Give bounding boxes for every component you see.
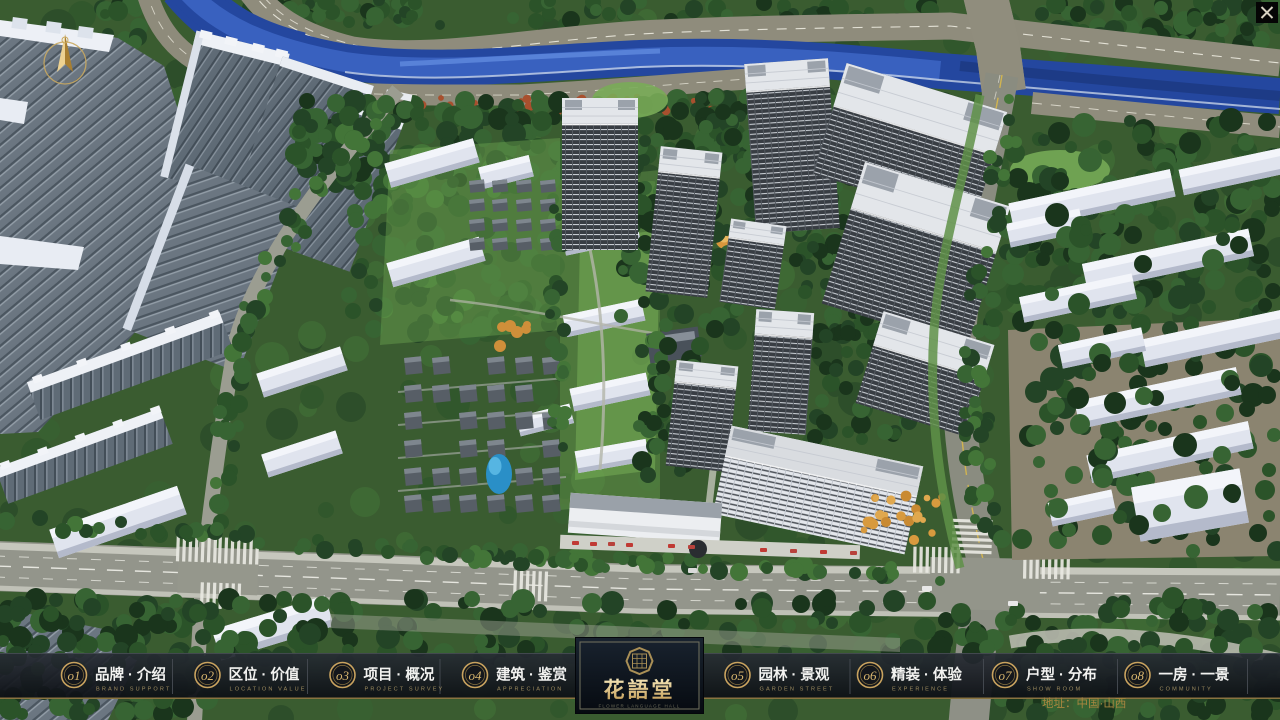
svg-text:精装 · 体验: 精装 · 体验 [891, 666, 962, 684]
svg-text:o7: o7 [999, 668, 1013, 683]
svg-text:COMMUNITY: COMMUNITY [1160, 687, 1213, 693]
svg-text:建筑 · 鉴赏: 建筑 · 鉴赏 [496, 666, 567, 684]
svg-text:EXPERIENCE: EXPERIENCE [892, 687, 949, 693]
svg-text:o8: o8 [1131, 668, 1145, 683]
svg-text:区位 · 价值: 区位 · 价值 [229, 666, 300, 684]
svg-text:o1: o1 [68, 668, 81, 683]
svg-text:项目 · 概况: 项目 · 概况 [364, 666, 435, 684]
svg-text:地址：中国·山西: 地址：中国·山西 [1042, 696, 1126, 710]
svg-text:o3: o3 [336, 668, 350, 683]
svg-text:o2: o2 [201, 668, 215, 683]
svg-text:o5: o5 [731, 668, 745, 683]
svg-text:品牌 · 介绍: 品牌 · 介绍 [95, 666, 166, 684]
svg-text:LOCATION VALUE: LOCATION VALUE [230, 687, 307, 693]
svg-text:o6: o6 [864, 668, 878, 683]
svg-text:户型 · 分布: 户型 · 分布 [1026, 666, 1097, 684]
svg-text:FLOWER LANGUAGE HALL: FLOWER LANGUAGE HALL [598, 704, 680, 709]
svg-text:APPRECIATION: APPRECIATION [497, 687, 563, 693]
svg-text:SHOW ROOM: SHOW ROOM [1027, 687, 1082, 693]
svg-text:一房 · 一景: 一房 · 一景 [1159, 666, 1230, 684]
svg-text:GARDEN STREET: GARDEN STREET [760, 687, 835, 693]
svg-text:o4: o4 [469, 668, 483, 683]
svg-text:BRAND SUPPORT: BRAND SUPPORT [96, 687, 171, 693]
svg-text:园林 · 景观: 园林 · 景观 [759, 666, 830, 684]
svg-text:PROJECT SURVEY: PROJECT SURVEY [365, 687, 445, 693]
svg-text:花語堂: 花語堂 [604, 678, 676, 702]
